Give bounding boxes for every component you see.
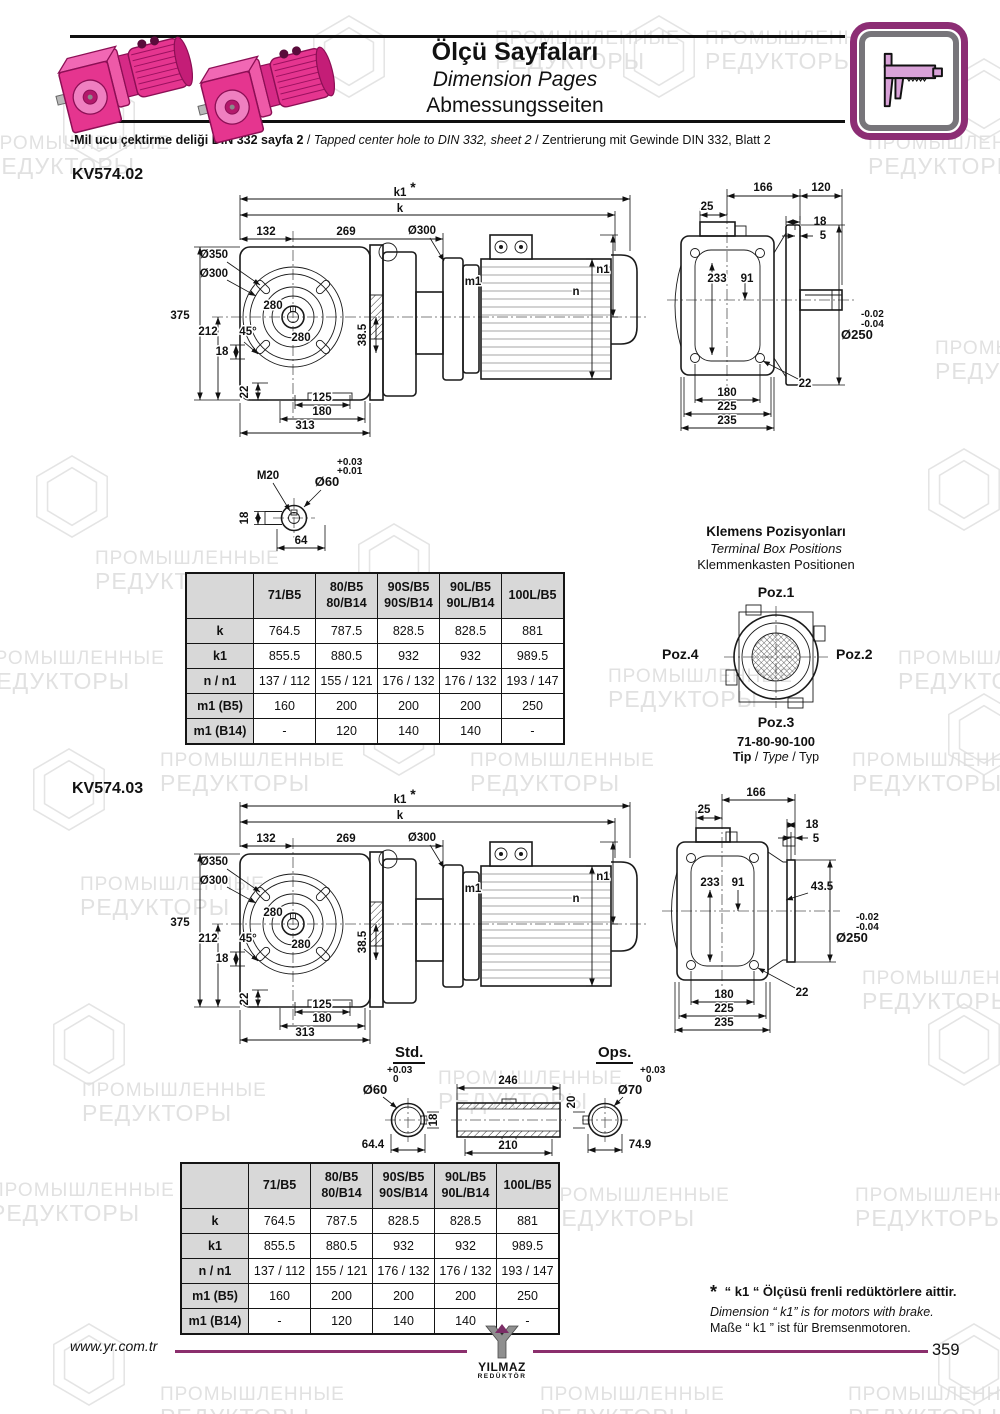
page-title-de: Abmessungsseiten [300, 94, 730, 118]
table-cell: 155 / 121 [311, 1259, 373, 1284]
dim-280a: 280 [263, 300, 282, 312]
table-cell: 160 [254, 694, 316, 719]
watermark-text: ПРОМЫШЛЕННЫЕРЕДУКТОРЫ [855, 1185, 1000, 1232]
dim-22: 22 [239, 993, 251, 1006]
watermark-text: ПРОМЫШЛЕННЫЕРЕДУКТОРЫ [82, 1080, 267, 1127]
dim-225: 225 [714, 1003, 734, 1015]
dim-235: 235 [714, 1017, 734, 1029]
dim-225: 225 [717, 401, 737, 413]
gearmotor-photos [55, 8, 345, 134]
table-row: k764.5787.5828.5828.5881 [181, 1209, 559, 1234]
dim-motor-flange-dia: Ø300 [408, 225, 436, 237]
catalog-page: ПРОМЫШЛЕННЫЕРЕДУКТОРЫПРОМЫШЛЕННЫЕРЕДУКТО… [0, 0, 1000, 1414]
tip-tr: Tip [733, 750, 752, 764]
dim-180b: 180 [717, 387, 736, 399]
mid-len-210: 210 [498, 1140, 517, 1152]
note-de: Zentrierung mit Gewinde DIN 332, Blatt 2 [542, 133, 771, 147]
dim-key-18: 18 [239, 511, 251, 524]
table-row: n / n1137 / 112155 / 121176 / 132176 / 1… [181, 1259, 559, 1284]
watermark-text: ПРОМЫШЛЕННЫЕРЕДУКТОРЫ [0, 648, 165, 695]
table-cell: 932 [440, 644, 502, 669]
watermark-text: ПРОМЫШЛЕННЫЕРЕДУКТОРЫ [160, 1384, 345, 1414]
dim-280b: 280 [291, 939, 310, 951]
poz3-label: Poz.3 [716, 714, 836, 730]
table-row-label: k [181, 1209, 249, 1234]
ops-key: 20 [566, 1096, 578, 1109]
dim-120: 120 [811, 182, 830, 194]
table-cell: 989.5 [497, 1234, 560, 1259]
table-cell: 193 / 147 [497, 1259, 560, 1284]
table-row: m1 (B14)-120140140- [186, 719, 564, 745]
dim-313: 313 [295, 420, 314, 432]
dim-5: 5 [813, 833, 820, 845]
kv57403-side-drawing: 166 25 18 5 233 91 43.5 -0.02 -0.04 Ø250… [640, 790, 980, 1050]
dim-300: Ø300 [200, 875, 228, 887]
dim-125: 125 [312, 392, 332, 404]
table-cell: - [254, 719, 316, 745]
dim-280b: 280 [291, 332, 310, 344]
dim-375: 375 [170, 917, 190, 929]
table-cell: - [249, 1309, 311, 1335]
caliper-icon [875, 50, 943, 112]
table-cell: 932 [435, 1234, 497, 1259]
logo-name: YILMAZ [460, 1360, 544, 1374]
gearmotor-front-drawing: k1 * k 132 269 Ø300 Ø350 Ø300 280 280 37… [160, 185, 650, 447]
terminal-title-de: Klemmenkasten Positionen [640, 557, 912, 572]
table-row-label: n / n1 [186, 669, 254, 694]
ops-len: 74.9 [629, 1139, 651, 1151]
std-dia: Ø60 [363, 1082, 388, 1097]
din-note: -Mil ucu çektirme deliği DIN 332 sayfa 2… [70, 133, 771, 147]
dim-212: 212 [198, 933, 217, 945]
table-row-label: m1 (B5) [181, 1284, 249, 1309]
table-cell: 200 [311, 1284, 373, 1309]
page-title-en: Dimension Pages [300, 68, 730, 92]
poz1-label: Poz.1 [716, 584, 836, 600]
dim-313: 313 [295, 1027, 314, 1039]
dim-tol-b: +0.01 [337, 466, 363, 477]
table-cell: 176 / 132 [435, 1259, 497, 1284]
table-cell: 881 [502, 619, 565, 644]
table-cell: 932 [373, 1234, 435, 1259]
table-cell: 764.5 [249, 1209, 311, 1234]
yilmaz-logo-icon [478, 1324, 526, 1360]
dim-91: 91 [732, 877, 745, 889]
table-col-header: 100L/B5 [502, 573, 565, 619]
std-key: 18 [428, 1113, 440, 1126]
dim-22b: 22 [799, 378, 812, 390]
note-tr: -Mil ucu çektirme deliği DIN 332 sayfa 2 [70, 133, 303, 147]
ops-tol-b: 0 [646, 1074, 652, 1085]
footer-rule-left [175, 1350, 467, 1353]
tip-en: Type [762, 750, 789, 764]
dim-132: 132 [256, 833, 275, 845]
table-cell: 828.5 [378, 619, 440, 644]
table-cell: 160 [249, 1284, 311, 1309]
dim-22: 22 [239, 386, 251, 399]
watermark-hexagon-icon [940, 690, 1000, 783]
table-cell: 828.5 [440, 619, 502, 644]
dim-132: 132 [256, 226, 275, 238]
kv57403-front-drawing: k1 * k 132 269 Ø300 Ø350 Ø300 280 280 37… [160, 792, 650, 1054]
table-cell: 855.5 [254, 644, 316, 669]
dim-38-5: 38.5 [357, 323, 369, 346]
dim-60: Ø60 [315, 474, 340, 489]
watermark-text: ПРОМЫШЛЕННЫЕРЕДУКТОРЫ [868, 133, 1000, 180]
watermark-text: ПРОМЫШЛЕННЫЕРЕДУКТОРЫ [540, 1384, 725, 1414]
dim-250: Ø250 [841, 327, 873, 342]
dim-k1-star: * [410, 786, 416, 802]
watermark-hexagon-icon [28, 452, 116, 545]
dim-300: Ø300 [200, 268, 228, 280]
footnote-en: Dimension “ k1” is for motors with brake… [710, 1305, 990, 1319]
dim-m20: M20 [257, 470, 279, 482]
type-range: 71-80-90-100 [640, 734, 912, 749]
std-tol-a: +0.03 [387, 1065, 413, 1076]
dim-m1: m1 [465, 883, 482, 895]
table-cell: 855.5 [249, 1234, 311, 1259]
std-len: 64.4 [362, 1139, 385, 1151]
table-cell: 137 / 112 [254, 669, 316, 694]
dim-280a: 280 [263, 907, 282, 919]
ops-tol-a: +0.03 [640, 1065, 666, 1076]
table-cell: 828.5 [435, 1209, 497, 1234]
table-cell: 140 [378, 719, 440, 745]
table-cell: 787.5 [316, 619, 378, 644]
logo-subtitle: REDÜKTÖR [460, 1373, 544, 1380]
dim-64: 64 [295, 535, 308, 547]
dim-18: 18 [216, 953, 229, 965]
dim-180: 180 [714, 989, 733, 1001]
table-cell: 787.5 [311, 1209, 373, 1234]
table-cell: 176 / 132 [378, 669, 440, 694]
table-row-label: m1 (B14) [181, 1309, 249, 1335]
kv57402-front-drawing: k1 * k 132 269 Ø300 Ø350 Ø300 280 280 37… [160, 185, 650, 447]
dim-45deg: 45° [239, 933, 257, 945]
table-row: m1 (B5)160200200200250 [181, 1284, 559, 1309]
k1-footnote: * “ k1 “ Ölçüsü frenli redüktörlere aitt… [710, 1282, 990, 1335]
dim-n: n [572, 893, 579, 905]
dim-235: 235 [717, 415, 737, 427]
table-row: m1 (B5)160200200200250 [186, 694, 564, 719]
table-row-label: m1 (B14) [186, 719, 254, 745]
table-row: k1855.5880.5932932989.5 [181, 1234, 559, 1259]
table-row: k764.5787.5828.5828.5881 [186, 619, 564, 644]
dim-166: 166 [746, 787, 765, 799]
dim-38-5: 38.5 [357, 930, 369, 953]
gearmotor-front-drawing: k1 * k 132 269 Ø300 Ø350 Ø300 280 280 37… [160, 792, 650, 1054]
table-row: n / n1137 / 112155 / 121176 / 132176 / 1… [186, 669, 564, 694]
table-cell: 250 [502, 694, 565, 719]
dim-45deg: 45° [239, 326, 257, 338]
table-col-header: 71/B5 [249, 1163, 311, 1209]
watermark-hexagon-icon [45, 1000, 133, 1093]
dim-350: Ø350 [200, 856, 228, 868]
table-cell: 176 / 132 [440, 669, 502, 694]
note-en: Tapped center hole to DIN 332, sheet 2 [314, 133, 532, 147]
dim-350: Ø350 [200, 249, 228, 261]
table-cell: 200 [378, 694, 440, 719]
dim-166: 166 [753, 182, 772, 194]
footnote-de: Maße “ k1 ” ist für Bremsenmotoren. [710, 1321, 990, 1335]
dim-m1: m1 [465, 276, 482, 288]
table-cell: 828.5 [373, 1209, 435, 1234]
table-col-header: 80/B5 80/B14 [311, 1163, 373, 1209]
dim-269: 269 [336, 226, 355, 238]
footer-rule-right [533, 1350, 928, 1353]
watermark-text: ПРОМЫШЛЕННЫЕРЕДУКТОРЫ [545, 1185, 730, 1232]
dim-25: 25 [701, 201, 714, 213]
table-cell: 932 [378, 644, 440, 669]
table-col-header: 90L/B5 90L/B14 [435, 1163, 497, 1209]
model-code-kv57402: KV574.02 [72, 166, 143, 184]
dim-212: 212 [198, 326, 217, 338]
std-tol-b: 0 [393, 1074, 399, 1085]
caliper-icon-box [850, 22, 968, 140]
table-cell: 764.5 [254, 619, 316, 644]
table-row-label: m1 (B5) [186, 694, 254, 719]
table-col-header: 80/B5 80/B14 [316, 573, 378, 619]
dim-18: 18 [216, 346, 229, 358]
dim-233: 233 [707, 273, 726, 285]
dim-k: k [397, 810, 404, 822]
poz4-label: Poz.4 [662, 646, 699, 662]
table-cell: 193 / 147 [502, 669, 565, 694]
table-cell: 137 / 112 [249, 1259, 311, 1284]
dimension-table-kv57403: 71/B580/B5 80/B1490S/B5 90S/B1490L/B5 90… [180, 1162, 560, 1335]
table-corner-cell [181, 1163, 249, 1209]
table-cell: 200 [440, 694, 502, 719]
table-row-label: n / n1 [181, 1259, 249, 1284]
table-cell: 120 [316, 719, 378, 745]
dim-375: 375 [170, 310, 190, 322]
table-col-header: 90S/B5 90S/B14 [378, 573, 440, 619]
table-cell: 880.5 [311, 1234, 373, 1259]
table-cell: 120 [311, 1309, 373, 1335]
dim-18b: 18 [814, 216, 827, 228]
terminal-title-en: Terminal Box Positions [640, 541, 912, 556]
dim-n1: n1 [596, 264, 610, 276]
dim-180: 180 [312, 1013, 331, 1025]
dim-k1: k1 [394, 187, 407, 199]
table-cell: 176 / 132 [373, 1259, 435, 1284]
watermark-text: ПРОМЫШЛЕННЫЕРЕДУКТОРЫ [470, 750, 655, 797]
dim-269: 269 [336, 833, 355, 845]
table-cell: 155 / 121 [316, 669, 378, 694]
page-title: Ölçü Sayfaları [300, 38, 730, 67]
table-cell: - [502, 719, 565, 745]
dim-25: 25 [698, 804, 711, 816]
website-link[interactable]: www.yr.com.tr [70, 1338, 157, 1354]
terminal-title-tr: Klemens Pozisyonları [640, 524, 912, 539]
dim-22: 22 [796, 987, 809, 999]
table-row-label: k1 [181, 1234, 249, 1259]
tip-de: Typ [799, 750, 819, 764]
dim-250: Ø250 [836, 930, 868, 945]
watermark-hexagon-icon [920, 445, 1000, 538]
dim-233: 233 [700, 877, 719, 889]
table-cell: 200 [373, 1284, 435, 1309]
footnote-tr: “ k1 “ Ölçüsü frenli redüktörlere aittir… [725, 1284, 957, 1299]
table-cell: 250 [497, 1284, 560, 1309]
page-number: 359 [932, 1341, 960, 1360]
table-col-header: 71/B5 [254, 573, 316, 619]
type-label-line: Tip / Type / Typ [640, 750, 912, 764]
dim-125: 125 [312, 999, 332, 1011]
hollow-shaft-options-drawing: +0.03 0 Ø60 18 64.4 246 210 20 +0 [335, 1042, 675, 1160]
table-cell: 881 [497, 1209, 560, 1234]
watermark-text: ПРОМЫШЛЕННЫЕРЕДУКТОРЫ [848, 1384, 1000, 1414]
table-cell: 140 [440, 719, 502, 745]
table-cell: 200 [316, 694, 378, 719]
table-row: k1855.5880.5932932989.5 [186, 644, 564, 669]
table-row-label: k [186, 619, 254, 644]
dim-k: k [397, 203, 404, 215]
watermark-text: ПРОМЫШЛЕННЫЕРЕДУКТОРЫ [898, 648, 1000, 695]
table-cell: 989.5 [502, 644, 565, 669]
dim-n: n [572, 286, 579, 298]
table-corner-cell [186, 573, 254, 619]
terminal-box-diagram [716, 600, 836, 712]
dim-91: 91 [741, 273, 754, 285]
watermark-text: ПРОМЫШЛЕННЫЕРЕДУКТОРЫ [0, 1180, 175, 1227]
dim-n1: n1 [596, 871, 610, 883]
mid-len-246: 246 [498, 1075, 517, 1087]
dim-k1: k1 [394, 794, 407, 806]
table-cell: 880.5 [316, 644, 378, 669]
table-row-label: k1 [186, 644, 254, 669]
watermark-text: ПРОМЫШЛЕННЫЕРЕДУКТОРЫ [160, 750, 345, 797]
ops-dia: Ø70 [618, 1082, 643, 1097]
dim-k1-star: * [410, 179, 416, 195]
table-cell: 140 [373, 1309, 435, 1335]
watermark-hexagon-icon [45, 1320, 133, 1413]
dimension-table-kv57402: 71/B580/B5 80/B1490S/B5 90S/B1490L/B5 90… [185, 572, 565, 745]
dim-5: 5 [820, 230, 827, 242]
dim-180: 180 [312, 406, 331, 418]
poz2-label: Poz.2 [836, 646, 873, 662]
table-col-header: 100L/B5 [497, 1163, 560, 1209]
table-cell: 200 [435, 1284, 497, 1309]
kv57402-shaft-detail: M20 +0.03 +0.01 Ø60 18 64 [235, 445, 415, 557]
dim-motor-flange-dia: Ø300 [408, 832, 436, 844]
dim-18: 18 [806, 819, 819, 831]
footnote-star: * [710, 1282, 721, 1302]
kv57402-side-drawing: 166 120 25 18 5 233 91 -0.02 -0.04 Ø250 … [655, 175, 955, 440]
table-col-header: 90L/B5 90L/B14 [440, 573, 502, 619]
model-code-kv57403: KV574.03 [72, 780, 143, 798]
table-col-header: 90S/B5 90S/B14 [373, 1163, 435, 1209]
